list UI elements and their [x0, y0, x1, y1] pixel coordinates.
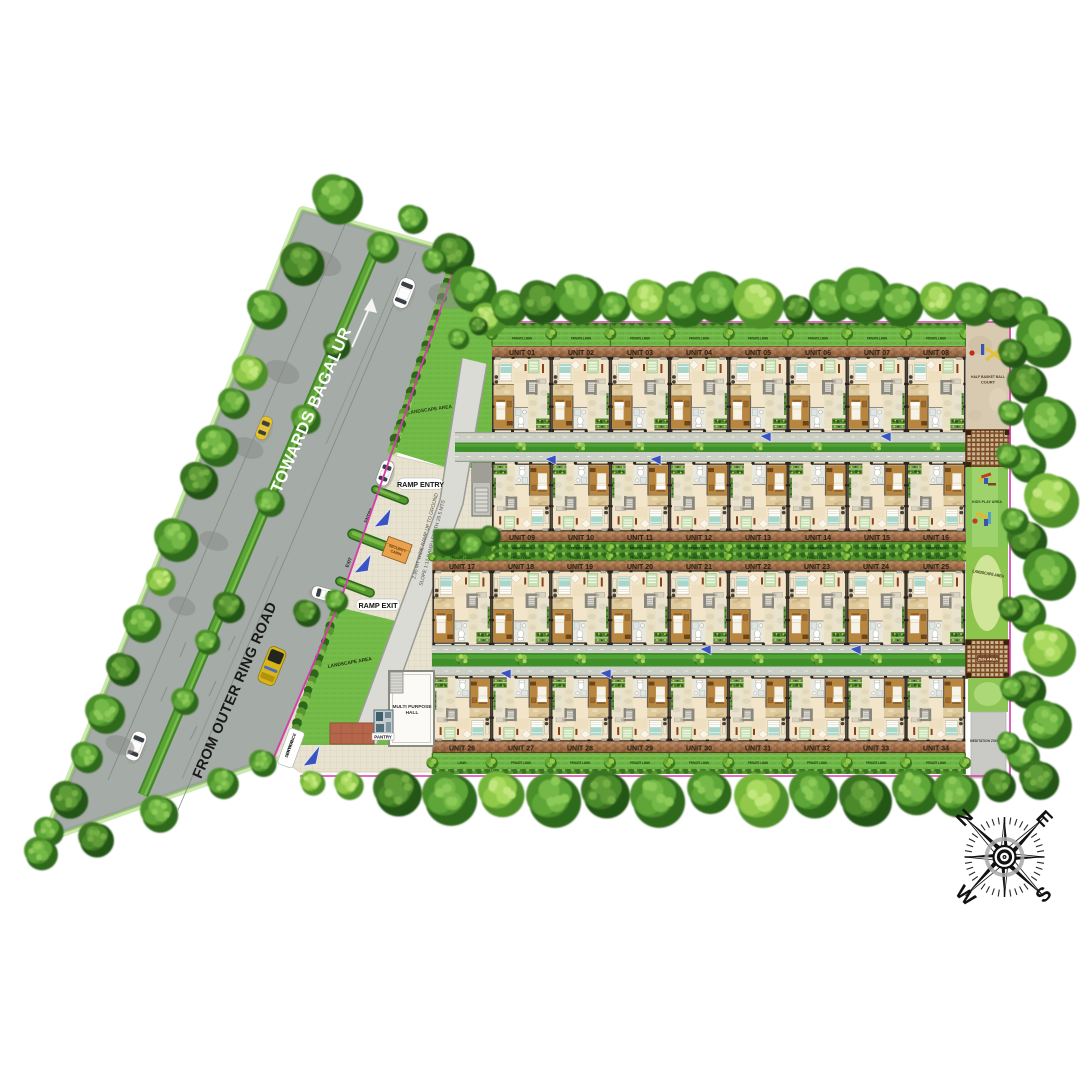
- svg-text:UNIT 08: UNIT 08: [923, 348, 949, 357]
- svg-text:UNIT 22: UNIT 22: [745, 562, 771, 571]
- svg-text:PRIVATE LAWN: PRIVATE LAWN: [867, 547, 887, 551]
- svg-text:UNIT 03: UNIT 03: [627, 348, 653, 357]
- svg-text:PANTRY: PANTRY: [374, 734, 392, 739]
- svg-text:UNIT 01: UNIT 01: [509, 348, 535, 357]
- svg-text:PRIVATE LAWN: PRIVATE LAWN: [512, 337, 532, 341]
- svg-text:PRIVATE LAWN: PRIVATE LAWN: [630, 337, 650, 341]
- svg-text:UNIT 33: UNIT 33: [863, 744, 889, 753]
- svg-text:PRIVATE LAWN: PRIVATE LAWN: [808, 547, 828, 551]
- svg-text:UNIT 16: UNIT 16: [923, 533, 949, 542]
- svg-text:UNIT 10: UNIT 10: [568, 533, 594, 542]
- svg-text:UNIT 20: UNIT 20: [627, 562, 653, 571]
- svg-text:PRIVATE LAWN: PRIVATE LAWN: [748, 761, 768, 765]
- svg-text:PRIVATE LAWN: PRIVATE LAWN: [748, 337, 768, 341]
- svg-text:UNIT 25: UNIT 25: [923, 562, 949, 571]
- svg-text:PRIVATE LAWN: PRIVATE LAWN: [511, 556, 531, 560]
- svg-text:COURT: COURT: [981, 380, 996, 385]
- svg-text:PRIVATE LAWN: PRIVATE LAWN: [866, 556, 886, 560]
- svg-text:PRIVATE LAWN: PRIVATE LAWN: [630, 547, 650, 551]
- svg-text:MEDITATION ZONE: MEDITATION ZONE: [970, 739, 1000, 743]
- svg-text:UNIT 26: UNIT 26: [449, 744, 475, 753]
- svg-text:KIDS PLAY AREA: KIDS PLAY AREA: [972, 499, 1002, 504]
- svg-text:UNIT 04: UNIT 04: [686, 348, 712, 357]
- svg-text:UNIT 30: UNIT 30: [686, 744, 712, 753]
- svg-text:PRIVATE LAWN: PRIVATE LAWN: [571, 337, 591, 341]
- svg-text:PRIVATE LAWN: PRIVATE LAWN: [866, 761, 886, 765]
- svg-text:UNIT 19: UNIT 19: [567, 562, 593, 571]
- svg-text:UNIT 21: UNIT 21: [686, 562, 712, 571]
- svg-text:PRIVATE LAWN: PRIVATE LAWN: [926, 556, 946, 560]
- svg-text:PRIVATE LAWN: PRIVATE LAWN: [570, 761, 590, 765]
- svg-text:PRIVATE LAWN: PRIVATE LAWN: [570, 556, 590, 560]
- svg-text:PRIVATE LAWN: PRIVATE LAWN: [926, 337, 946, 341]
- svg-text:UNIT 31: UNIT 31: [745, 744, 771, 753]
- svg-text:UNIT 05: UNIT 05: [745, 348, 771, 357]
- svg-text:PRIVATE LAWN: PRIVATE LAWN: [511, 761, 531, 765]
- svg-text:PRIVATE LAWN: PRIVATE LAWN: [571, 547, 591, 551]
- svg-text:PRIVATE LAWN: PRIVATE LAWN: [689, 337, 709, 341]
- svg-text:PRIVATE LAWN: PRIVATE LAWN: [748, 556, 768, 560]
- svg-text:PRIVATE LAWN: PRIVATE LAWN: [807, 556, 827, 560]
- svg-text:ZEN AREA: ZEN AREA: [978, 657, 998, 662]
- svg-text:PRIVATE LAWN: PRIVATE LAWN: [807, 761, 827, 765]
- svg-text:UNIT 09: UNIT 09: [509, 533, 535, 542]
- svg-text:UNIT 24: UNIT 24: [863, 562, 889, 571]
- svg-text:UNIT 13: UNIT 13: [745, 533, 771, 542]
- svg-text:PRIVATE LAWN: PRIVATE LAWN: [926, 547, 946, 551]
- svg-text:UNIT 06: UNIT 06: [805, 348, 831, 357]
- svg-text:UNIT 27: UNIT 27: [508, 744, 534, 753]
- svg-text:PRIVATE LAWN: PRIVATE LAWN: [630, 556, 650, 560]
- svg-text:UNIT 17: UNIT 17: [449, 562, 475, 571]
- svg-text:UNIT 14: UNIT 14: [805, 533, 831, 542]
- svg-text:PRIVATE LAWN: PRIVATE LAWN: [689, 761, 709, 765]
- svg-text:UNIT 23: UNIT 23: [804, 562, 830, 571]
- svg-text:PRIVATE LAWN: PRIVATE LAWN: [630, 761, 650, 765]
- svg-text:PRIVATE LAWN: PRIVATE LAWN: [926, 761, 946, 765]
- svg-text:HALF BASKET BALL: HALF BASKET BALL: [971, 374, 1005, 379]
- svg-text:PRIVATE LAWN: PRIVATE LAWN: [512, 547, 532, 551]
- svg-text:PRIVATE LAWN: PRIVATE LAWN: [808, 337, 828, 341]
- svg-text:UNIT 18: UNIT 18: [508, 562, 534, 571]
- svg-text:RAMP ENTRY: RAMP ENTRY: [397, 480, 444, 489]
- svg-text:UNIT 32: UNIT 32: [804, 744, 830, 753]
- svg-text:UNIT 28: UNIT 28: [567, 744, 593, 753]
- svg-text:UNIT 12: UNIT 12: [686, 533, 712, 542]
- svg-text:LAWN: LAWN: [458, 761, 467, 765]
- svg-text:UNIT 15: UNIT 15: [864, 533, 890, 542]
- svg-text:MULTI PURPOSE: MULTI PURPOSE: [392, 704, 432, 710]
- svg-text:UNIT 07: UNIT 07: [864, 348, 890, 357]
- svg-text:PRIVATE LAWN: PRIVATE LAWN: [689, 556, 709, 560]
- svg-text:PRIVATE LAWN: PRIVATE LAWN: [867, 337, 887, 341]
- svg-text:UNIT 11: UNIT 11: [627, 533, 653, 542]
- svg-text:UNIT 34: UNIT 34: [923, 744, 949, 753]
- svg-text:HALL: HALL: [406, 710, 419, 716]
- svg-text:UNIT 02: UNIT 02: [568, 348, 594, 357]
- svg-text:PRIVATE LAWN: PRIVATE LAWN: [748, 547, 768, 551]
- svg-text:PRIVATE LAWN: PRIVATE LAWN: [689, 547, 709, 551]
- svg-text:UNIT 29: UNIT 29: [627, 744, 653, 753]
- svg-text:RAMP EXIT: RAMP EXIT: [358, 601, 398, 610]
